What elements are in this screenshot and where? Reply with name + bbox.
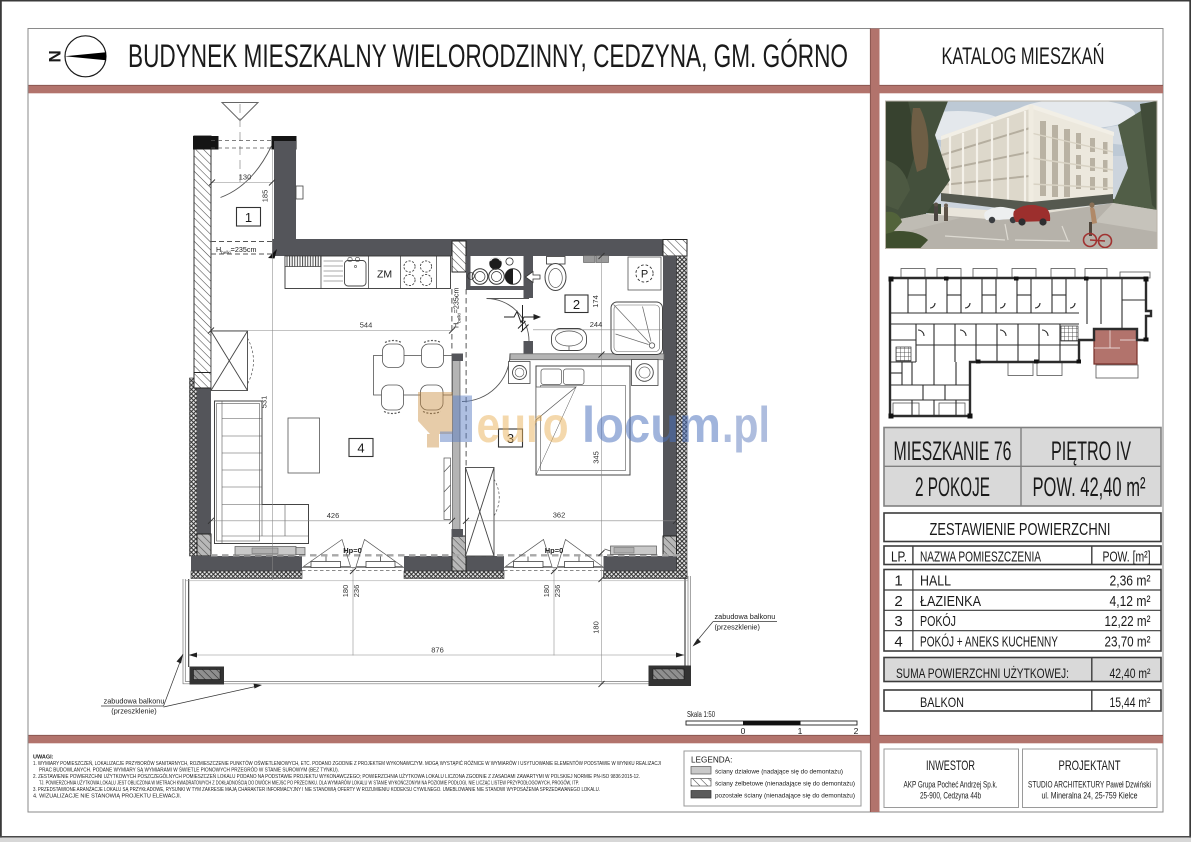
svg-text:POW. [m²]: POW. [m²] (1103, 549, 1151, 566)
svg-text:1: 1 (798, 726, 803, 736)
svg-text:2: 2 (894, 593, 902, 610)
svg-text:174: 174 (591, 295, 600, 308)
svg-text:PRAC BUDOWLANYCH. PODANE WYMIA: PRAC BUDOWLANYCH. PODANE WYMIARY SĄ WYMI… (39, 766, 339, 774)
svg-text:15,44 m²: 15,44 m² (1110, 694, 1151, 710)
svg-text:130: 130 (239, 173, 252, 182)
svg-text:INWESTOR: INWESTOR (926, 757, 975, 773)
svg-text:AKP Grupa Pocheć Andrzej Sp.k.: AKP Grupa Pocheć Andrzej Sp.k. (904, 780, 998, 790)
svg-text:TJ. POWIERZCHNIA UŻYTKOWA LOKA: TJ. POWIERZCHNIA UŻYTKOWA LOKALU JEST OB… (39, 779, 579, 787)
svg-text:42,40 m²: 42,40 m² (1110, 665, 1151, 681)
svg-text:23,70 m²: 23,70 m² (1105, 633, 1151, 650)
svg-text:2: 2 (573, 297, 580, 312)
svg-text:2. ZESTAWIENIE POWIERZCHNI UŻY: 2. ZESTAWIENIE POWIERZCHNI UŻYTKOWYCH PO… (33, 773, 640, 780)
svg-text:4. WIZUALIZACJE NIE STANOWIĄ P: 4. WIZUALIZACJE NIE STANOWIĄ PROJEKTU EL… (33, 794, 182, 800)
svg-text:POKÓJ + ANEKS KUCHENNY: POKÓJ + ANEKS KUCHENNY (920, 633, 1058, 650)
svg-text:locum: locum (582, 396, 721, 453)
svg-text:.pl: .pl (722, 396, 770, 453)
svg-text:25-900, Cedzyna 44b: 25-900, Cedzyna 44b (920, 791, 981, 801)
svg-text:544: 544 (360, 321, 373, 330)
svg-text:UWAGI:: UWAGI: (33, 755, 54, 761)
svg-text:12,22 m²: 12,22 m² (1105, 613, 1151, 630)
svg-text:Hp=0: Hp=0 (343, 546, 362, 555)
svg-text:1. WYMIARY POMIESZCZEŃ, LOKALI: 1. WYMIARY POMIESZCZEŃ, LOKALIZACJE PRZY… (33, 759, 661, 767)
svg-text:POW. 42,40 m²: POW. 42,40 m² (1033, 472, 1146, 502)
svg-text:4: 4 (357, 441, 364, 456)
svg-text:ściany działowe (nadające się: ściany działowe (nadające się do demonta… (715, 769, 843, 776)
svg-text:SUMA POWIERZCHNI UŻYTKOWEJ:: SUMA POWIERZCHNI UŻYTKOWEJ: (896, 664, 1069, 681)
svg-text:362: 362 (553, 511, 566, 520)
svg-text:180: 180 (592, 621, 601, 634)
svg-text:2,36 m²: 2,36 m² (1110, 573, 1151, 590)
svg-text:180: 180 (341, 585, 350, 598)
svg-text:HALL: HALL (920, 573, 951, 590)
svg-text:2 POKOJE: 2 POKOJE (915, 472, 990, 502)
svg-text:3: 3 (894, 613, 902, 630)
svg-text:PROJEKTANT: PROJEKTANT (1059, 757, 1121, 773)
svg-text:Hp=0: Hp=0 (545, 546, 564, 555)
svg-text:POKÓJ: POKÓJ (920, 613, 956, 630)
svg-text:185: 185 (261, 190, 270, 203)
svg-text:345: 345 (592, 451, 601, 464)
svg-text:ŁAZIENKA: ŁAZIENKA (920, 593, 981, 610)
svg-text:876: 876 (431, 646, 444, 655)
svg-text:236: 236 (352, 585, 361, 598)
svg-text:ul. Mineralna 24, 25-759 Kielc: ul. Mineralna 24, 25-759 Kielce (1042, 791, 1138, 801)
svg-text:LEGENDA:: LEGENDA: (691, 756, 732, 765)
svg-text:0: 0 (741, 726, 746, 736)
svg-text:1: 1 (245, 210, 252, 225)
svg-text:N: N (45, 50, 64, 62)
svg-text:P: P (641, 269, 648, 281)
svg-text:1: 1 (894, 573, 902, 590)
svg-text:LP.: LP. (891, 549, 907, 566)
svg-text:426: 426 (327, 511, 340, 520)
svg-text:PIĘTRO IV: PIĘTRO IV (1051, 436, 1131, 466)
svg-text:4: 4 (894, 633, 902, 650)
svg-text:531: 531 (260, 396, 269, 409)
svg-text:euro: euro (477, 396, 569, 453)
svg-text:2: 2 (854, 726, 859, 736)
svg-text:Skala 1:50: Skala 1:50 (687, 710, 715, 719)
svg-text:zabudowa balkonu: zabudowa balkonu (104, 697, 165, 706)
svg-text:pozostałe ściany (nienadające: pozostałe ściany (nienadające się do dem… (715, 793, 855, 800)
svg-text:zabudowa balkonu: zabudowa balkonu (715, 612, 776, 621)
svg-text:236: 236 (553, 585, 562, 598)
svg-text:4,12 m²: 4,12 m² (1110, 593, 1151, 610)
svg-text:244: 244 (590, 320, 603, 329)
svg-text:KATALOG MIESZKAŃ: KATALOG MIESZKAŃ (942, 43, 1105, 70)
svg-text:BALKON: BALKON (920, 694, 964, 710)
svg-text:NAZWA POMIESZCZENIA: NAZWA POMIESZCZENIA (920, 549, 1041, 566)
svg-text:BUDYNEK MIESZKALNY WIELORODZIN: BUDYNEK MIESZKALNY WIELORODZINNY, CEDZYN… (128, 37, 848, 74)
svg-text:ściany żelbetowe (nienadające: ściany żelbetowe (nienadające się do dem… (715, 781, 855, 788)
svg-text:STUDIO ARCHITEKTURY Paweł Dzwi: STUDIO ARCHITEKTURY Paweł Dzwiński (1028, 780, 1151, 790)
svg-text:MIESZKANIE 76: MIESZKANIE 76 (894, 436, 1012, 466)
svg-text:(przeszklenie): (przeszklenie) (111, 707, 156, 716)
svg-text:ZM: ZM (377, 269, 392, 281)
svg-text:ZESTAWIENIE POWIERZCHNI: ZESTAWIENIE POWIERZCHNI (930, 519, 1111, 539)
svg-text:180: 180 (542, 585, 551, 598)
svg-text:3. PRZEDSTAWIONE ARANŻACJE LOK: 3. PRZEDSTAWIONE ARANŻACJE LOKALU SĄ PRZ… (33, 786, 600, 793)
svg-text:(przeszklenie): (przeszklenie) (715, 623, 760, 632)
